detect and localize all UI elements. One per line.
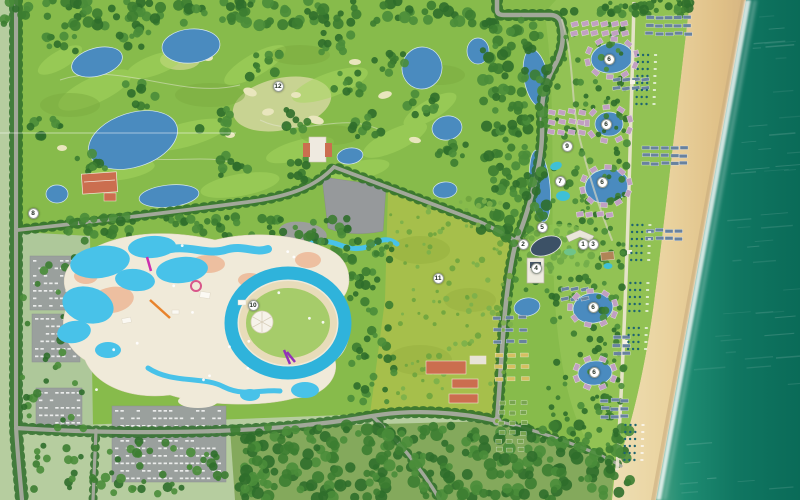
- map-marker-11[interactable]: 11: [433, 273, 444, 284]
- markers-layer: 1289752134101166666: [0, 0, 800, 500]
- map-marker-6[interactable]: 6: [597, 177, 608, 188]
- map-marker-2[interactable]: 2: [518, 239, 529, 250]
- resort-masterplan-map: 1289752134101166666: [0, 0, 800, 500]
- map-marker-6[interactable]: 6: [604, 54, 615, 65]
- map-marker-12[interactable]: 12: [273, 81, 284, 92]
- map-marker-6[interactable]: 6: [601, 119, 612, 130]
- map-marker-3[interactable]: 3: [588, 239, 599, 250]
- map-marker-8[interactable]: 8: [28, 208, 39, 219]
- map-marker-5[interactable]: 5: [537, 222, 548, 233]
- map-marker-4[interactable]: 4: [531, 263, 542, 274]
- map-marker-6[interactable]: 6: [589, 367, 600, 378]
- map-marker-6[interactable]: 6: [588, 302, 599, 313]
- map-marker-7[interactable]: 7: [555, 176, 566, 187]
- map-marker-10[interactable]: 10: [248, 300, 259, 311]
- map-marker-1[interactable]: 1: [578, 239, 589, 250]
- map-marker-9[interactable]: 9: [562, 141, 573, 152]
